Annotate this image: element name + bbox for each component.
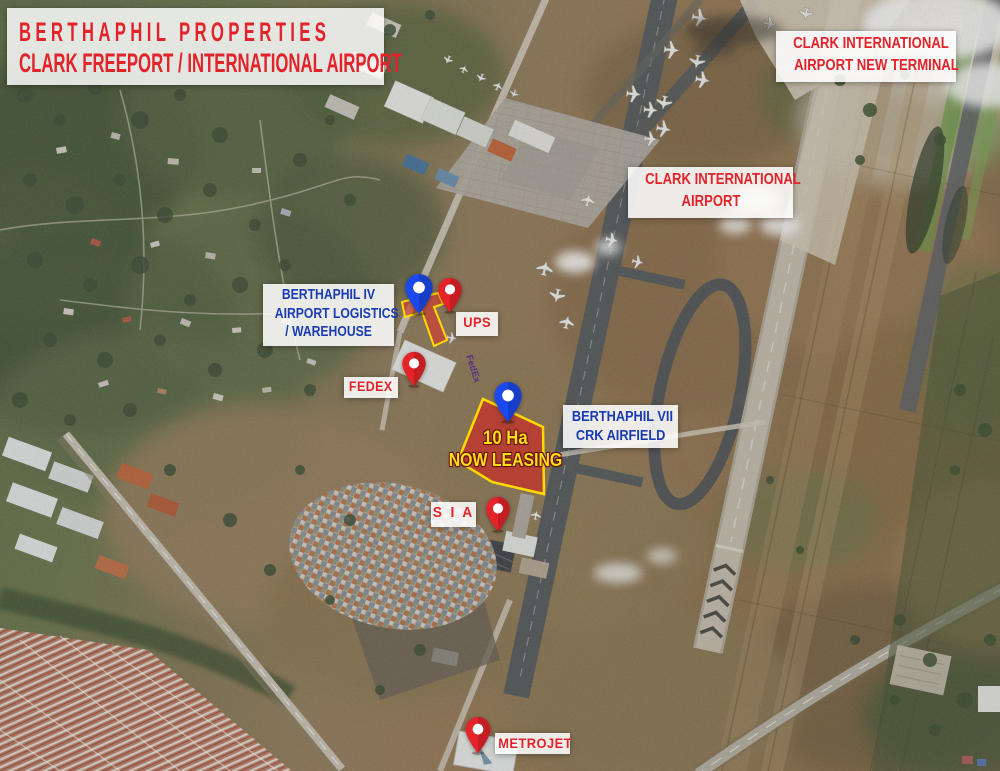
- title-line-2: CLARK FREEPORT / INTERNATIONAL AIRPORT: [19, 48, 372, 79]
- new-terminal-label: CLARK INTERNATIONAL AIRPORT NEW TERMINAL: [776, 31, 956, 82]
- ups-pin[interactable]: [436, 277, 464, 314]
- clark-airport-label: CLARK INTERNATIONAL AIRPORT: [628, 167, 793, 218]
- title-card: BERTHAPHIL PROPERTIES CLARK FREEPORT / I…: [7, 8, 384, 85]
- sia-label: S I A: [431, 502, 476, 527]
- map-canvas: FedEx: [0, 0, 1000, 771]
- title-line-1: BERTHAPHIL PROPERTIES: [19, 17, 372, 48]
- leasing-area-size: 10 Ha: [440, 428, 570, 450]
- berthaphil-iv-pin[interactable]: [403, 273, 435, 316]
- fedex-pin[interactable]: [400, 351, 428, 388]
- leasing-status: NOW LEASING: [440, 450, 570, 470]
- fedex-label: FEDEX: [344, 377, 398, 398]
- leasing-text: 10 Ha NOW LEASING: [440, 428, 570, 470]
- metrojet-label: METROJET: [495, 733, 570, 754]
- berthaphil-iv-label: BERTHAPHIL IV AIRPORT LOGISTICS / WAREHO…: [263, 284, 394, 346]
- berthaphil-vii-pin[interactable]: [492, 381, 524, 424]
- metrojet-pin[interactable]: [463, 716, 493, 755]
- sia-pin[interactable]: [484, 496, 512, 533]
- ups-label: UPS: [456, 312, 498, 336]
- berthaphil-vii-label: BERTHAPHIL VII CRK AIRFIELD: [563, 405, 678, 448]
